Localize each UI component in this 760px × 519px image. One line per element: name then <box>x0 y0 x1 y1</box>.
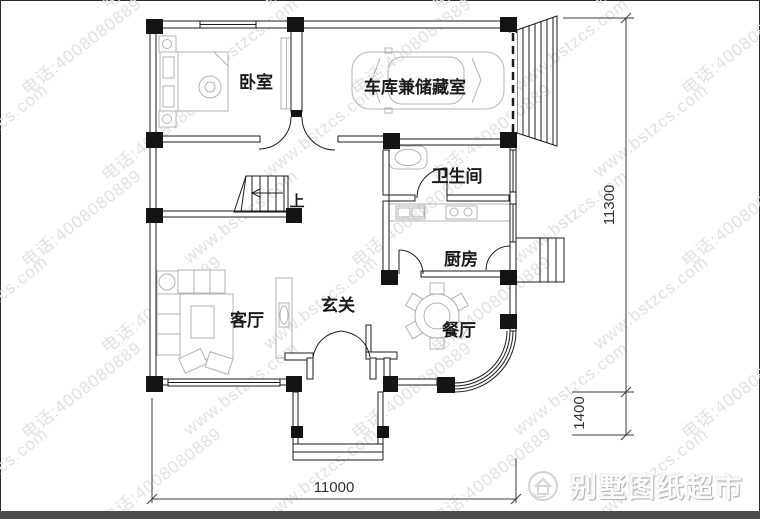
dim-width-total: 11000 <box>314 479 355 496</box>
room-label-bathroom: 卫生间 <box>432 166 483 186</box>
stairs <box>234 176 288 212</box>
floor-plan-page: www.bstzcs.com电话:4008080889www.bstzcs.co… <box>0 0 760 519</box>
logo: 别墅图纸超市 <box>524 466 744 505</box>
garage-ramp <box>517 16 557 146</box>
stairs-up-label: 上 <box>289 193 304 210</box>
porch <box>293 392 383 460</box>
dim-bay-depth: 1400 <box>571 396 588 429</box>
room-label-kitchen: 厨房 <box>444 249 478 269</box>
room-label-foyer: 玄关 <box>321 295 355 315</box>
floor-plan-svg: 11300 1400 11000 卧室 车库兼储藏室 卫生间 厨房 客厅 玄关 … <box>0 0 760 519</box>
room-label-garage: 车库兼储藏室 <box>364 77 466 97</box>
bathtub <box>389 146 427 169</box>
logo-house-icon <box>524 467 562 505</box>
room-label-bedroom: 卧室 <box>239 72 273 92</box>
room-label-living: 客厅 <box>229 310 264 330</box>
room-label-dining: 餐厅 <box>442 320 476 340</box>
garage-door <box>509 33 517 133</box>
tv-cabinet <box>276 278 292 358</box>
dim-height-total: 11300 <box>601 185 618 226</box>
logo-text: 别墅图纸超市 <box>570 466 744 505</box>
sofa-set <box>157 270 233 374</box>
bay-window <box>455 331 516 392</box>
kitchen-counter <box>389 204 510 221</box>
bottom-bar <box>0 511 760 519</box>
side-steps <box>516 238 564 282</box>
